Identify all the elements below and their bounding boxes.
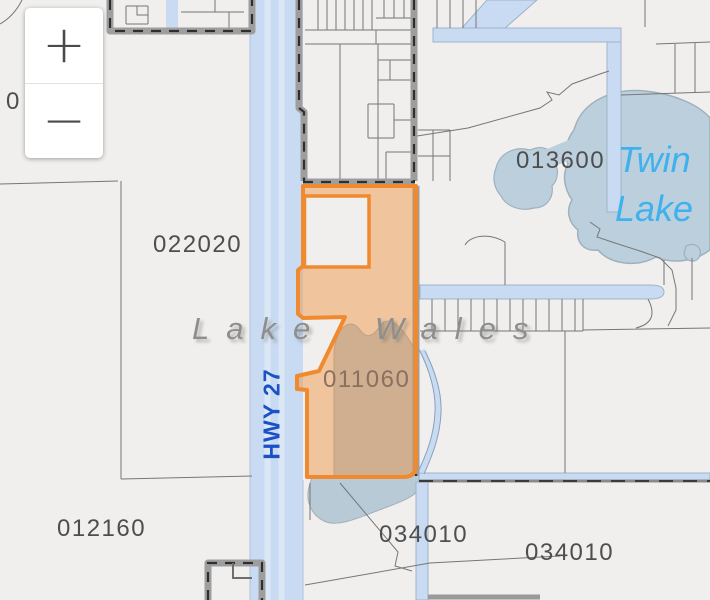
parcel-label-012160: 012160 [57, 515, 146, 543]
highway-label: HWY 27 [259, 368, 286, 459]
zoom-control: + − [25, 8, 103, 158]
parcel-cutout [305, 196, 370, 267]
plus-icon: + [42, 19, 86, 71]
parcel-label-034010-west: 034010 [379, 521, 468, 549]
zoom-out-button[interactable]: − [25, 84, 103, 159]
lake-name-label: Twin Lake [598, 136, 710, 233]
minus-icon: − [42, 95, 86, 147]
map-app: { "zoom_control": { "zoom_in_symbol": "+… [0, 0, 710, 600]
parcel-label-034010-east: 034010 [525, 539, 614, 567]
map-canvas[interactable] [0, 0, 710, 600]
hwy27-road [250, 0, 303, 600]
lake-name-line1: Twin [598, 136, 710, 185]
parcel-label-partial: 0 [6, 88, 21, 116]
city-name-label: Lake Wales [192, 311, 545, 347]
parcel-label-011060: 011060 [323, 366, 410, 394]
parcel-label-022020: 022020 [153, 231, 242, 259]
lake-name-line2: Lake [598, 185, 710, 234]
zoom-in-button[interactable]: + [25, 8, 103, 84]
parcel-label-013600: 013600 [516, 147, 605, 175]
